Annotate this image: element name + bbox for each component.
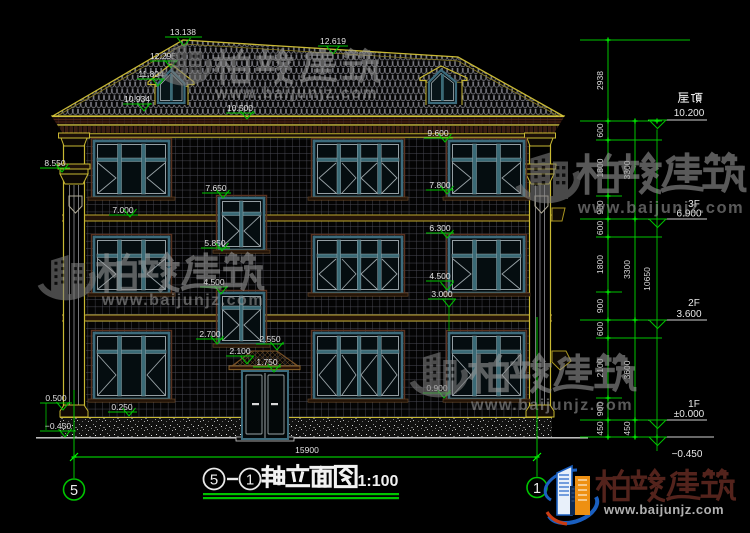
svg-text:2.100: 2.100: [229, 346, 251, 356]
svg-text:1: 1: [533, 481, 541, 497]
svg-text:12.619: 12.619: [320, 36, 346, 46]
svg-text:0.250: 0.250: [111, 402, 133, 412]
svg-text:7.800: 7.800: [429, 180, 451, 190]
svg-text:1800: 1800: [595, 255, 605, 274]
svg-text:6.300: 6.300: [429, 223, 451, 233]
svg-text:450: 450: [595, 421, 605, 435]
svg-text:10650: 10650: [642, 267, 652, 291]
svg-text:0.500: 0.500: [45, 393, 67, 403]
svg-text:−0.450: −0.450: [672, 449, 703, 460]
svg-text:−0.450: −0.450: [45, 421, 72, 431]
svg-text:±0.000: ±0.000: [674, 409, 705, 420]
svg-text:600: 600: [595, 221, 605, 235]
svg-text:www.baijunjz.com: www.baijunjz.com: [215, 85, 379, 102]
svg-text:4.500: 4.500: [429, 271, 451, 281]
svg-text:3.600: 3.600: [676, 309, 701, 320]
svg-text:www.baijunjz.com: www.baijunjz.com: [577, 199, 744, 217]
svg-text:2938: 2938: [595, 71, 605, 90]
svg-text:www.baijunjz.com: www.baijunjz.com: [470, 397, 633, 414]
svg-text:5: 5: [210, 472, 218, 489]
svg-text:600: 600: [595, 123, 605, 137]
svg-text:900: 900: [595, 299, 605, 313]
svg-text:2.700: 2.700: [199, 329, 221, 339]
svg-text:1: 1: [246, 472, 254, 489]
svg-text:www.baijunjz.com: www.baijunjz.com: [101, 292, 264, 309]
svg-text:5.850: 5.850: [204, 238, 226, 248]
svg-text:3.000: 3.000: [431, 289, 453, 299]
svg-text:15900: 15900: [295, 445, 319, 455]
svg-text:8.550: 8.550: [44, 158, 66, 168]
svg-text:600: 600: [595, 322, 605, 336]
svg-text:2.550: 2.550: [259, 334, 281, 344]
svg-text:10.200: 10.200: [674, 108, 705, 119]
svg-text:2F: 2F: [688, 298, 700, 309]
svg-text:1.750: 1.750: [256, 357, 278, 367]
svg-text:13.138: 13.138: [170, 27, 196, 37]
svg-text:7.650: 7.650: [205, 183, 227, 193]
svg-text:10.934: 10.934: [124, 94, 150, 104]
svg-text:3300: 3300: [622, 260, 632, 279]
svg-text:10.500: 10.500: [227, 103, 253, 113]
svg-text:9.600: 9.600: [427, 128, 449, 138]
svg-text:450: 450: [622, 421, 632, 435]
svg-text:5: 5: [70, 483, 78, 499]
svg-text:1:100: 1:100: [358, 473, 399, 490]
svg-text:7.000: 7.000: [112, 205, 134, 215]
svg-text:www.baijunjz.com: www.baijunjz.com: [603, 502, 724, 517]
